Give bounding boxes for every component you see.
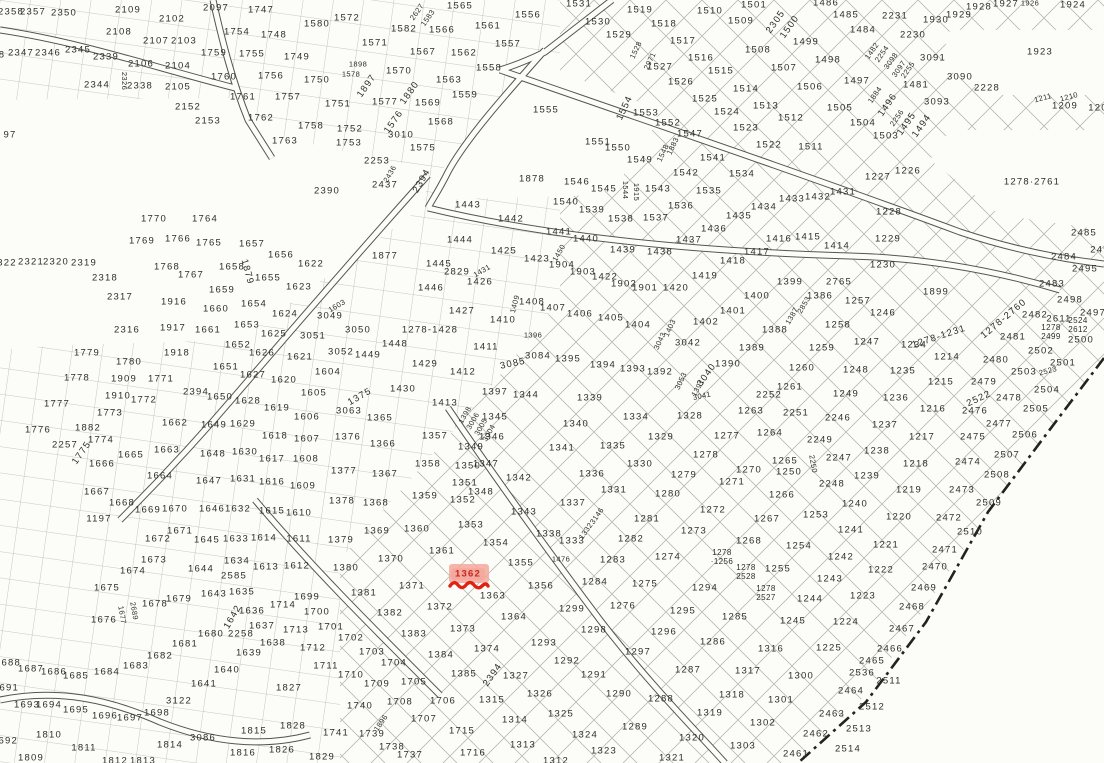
parcel-label: 3040 bbox=[696, 362, 719, 389]
parcel-label: 2477 bbox=[986, 419, 1012, 429]
parcel-label: 1249 bbox=[833, 389, 859, 399]
parcel-label: 2253 bbox=[364, 156, 390, 166]
parcel-label: 1330 bbox=[627, 459, 653, 469]
parcel-label: 1751 bbox=[325, 99, 351, 109]
parcel-label: 2482 bbox=[1022, 310, 1048, 320]
parcel-label: 1680 bbox=[198, 629, 224, 639]
parcel-label: 1915 bbox=[632, 183, 640, 201]
parcel-label: 1396 bbox=[524, 331, 542, 339]
parcel-label: 1294 bbox=[692, 583, 718, 593]
parcel-label: 1924 bbox=[1060, 0, 1086, 10]
parcel-label: 1613 bbox=[253, 562, 279, 572]
parcel-label: 1270 bbox=[736, 465, 762, 475]
parcel-label: 1916 bbox=[161, 297, 187, 307]
parcel-label: 3084 bbox=[525, 351, 551, 361]
parcel-label: 1575 bbox=[410, 143, 436, 153]
parcel-label: 1627 bbox=[240, 370, 266, 380]
parcel-label: 1626 bbox=[249, 348, 275, 358]
parcel-label: 2344 bbox=[84, 80, 110, 90]
parcel-label: 97 bbox=[4, 130, 17, 140]
parcel-label: 1441 bbox=[546, 227, 572, 237]
parcel-label: 2585 bbox=[221, 571, 247, 581]
parcel-label: 1413 bbox=[432, 398, 458, 408]
parcel-label: 1387 bbox=[784, 306, 800, 326]
parcel-label: 1439 bbox=[610, 245, 636, 255]
parcel-label: 1369 bbox=[364, 526, 390, 536]
parcel-label: 1567 bbox=[410, 47, 436, 57]
parcel-label: 1518 bbox=[651, 19, 677, 29]
parcel-label: 1709 bbox=[364, 679, 390, 689]
parcel-label: 3043 bbox=[653, 331, 668, 351]
parcel-label: 1565 bbox=[447, 1, 473, 11]
parcel-label: 1760 bbox=[211, 72, 237, 82]
parcel-label: 1506 bbox=[797, 82, 823, 92]
parcel-label: 1228 bbox=[876, 207, 902, 217]
parcel-label: 2469 bbox=[911, 583, 937, 593]
parcel-label: 1442 bbox=[498, 214, 524, 224]
parcel-label: 1617 bbox=[259, 454, 285, 464]
parcel-label: 1664 bbox=[147, 471, 173, 481]
parcel-label: 1360 bbox=[404, 524, 430, 534]
parcel-label: 1444 bbox=[447, 235, 473, 245]
parcel-label: 1284 bbox=[582, 577, 608, 587]
parcel-label: 2502 bbox=[1028, 346, 1054, 356]
parcel-label: 1657 bbox=[239, 239, 265, 249]
parcel-label: 1286 bbox=[700, 637, 726, 647]
parcel-label: 1291 bbox=[581, 670, 607, 680]
parcel-label: 1419 bbox=[692, 271, 718, 281]
parcel-label: 1400 bbox=[744, 291, 770, 301]
parcel-label: 1242 bbox=[828, 552, 854, 562]
parcel-label: 2536 bbox=[849, 668, 875, 678]
parcel-label: 1612 bbox=[284, 561, 310, 571]
parcel-label: 2346 bbox=[35, 48, 61, 58]
parcel-label: 2109 bbox=[115, 5, 141, 15]
parcel-label: 1323 bbox=[591, 746, 617, 756]
parcel-label: 1278 2499 bbox=[1041, 324, 1060, 342]
parcel-label: 1392 bbox=[647, 367, 673, 377]
parcel-label: 1316 bbox=[758, 644, 784, 654]
parcel-label: 2689 bbox=[129, 601, 140, 620]
parcel-label: 1321 bbox=[659, 753, 685, 763]
parcel-label: 1635 bbox=[229, 587, 255, 597]
parcel-label: 1677 bbox=[117, 605, 128, 624]
parcel-label: 1703 bbox=[359, 647, 385, 657]
parcel-label: 1268 bbox=[736, 536, 762, 546]
parcel-label: 1267 bbox=[754, 514, 780, 524]
parcel-label: 2484 bbox=[1051, 252, 1077, 262]
parcel-label: 1434 bbox=[751, 202, 777, 212]
parcel-label: 1485 bbox=[833, 10, 859, 20]
parcel-label: 1779 bbox=[74, 348, 100, 358]
parcel-label: 1287 bbox=[675, 665, 701, 675]
parcel-label: 1713 bbox=[283, 625, 309, 635]
parcel-label: 1278-1428 bbox=[402, 325, 458, 335]
parcel-label: 1714 bbox=[270, 600, 296, 610]
parcel-label: 1504 bbox=[850, 118, 876, 128]
parcel-label: 1762 bbox=[248, 113, 274, 123]
parcel-label: 1339 bbox=[577, 393, 603, 403]
parcel-label: 1606 bbox=[294, 412, 320, 422]
parcel-label: 1415 bbox=[795, 232, 821, 242]
parcel-label: 2467 bbox=[889, 624, 915, 634]
parcel-label: 1623 bbox=[286, 282, 312, 292]
parcel-label: 1259 bbox=[809, 343, 835, 353]
parcel-label: 1929 bbox=[946, 10, 972, 20]
parcel-label: 1644 bbox=[188, 564, 214, 574]
parcel-label: 1899 bbox=[923, 287, 949, 297]
parcel-label: 1699 bbox=[294, 592, 320, 602]
parcel-label: 1898 bbox=[349, 60, 367, 68]
parcel-label: 1300 bbox=[788, 671, 814, 681]
parcel-label: 2512 bbox=[859, 702, 885, 712]
parcel-label: 1359 bbox=[412, 491, 438, 501]
parcel-label: 1542 bbox=[673, 168, 699, 178]
parcel-label: 1654 bbox=[241, 299, 267, 309]
parcel-label: 1285 bbox=[722, 612, 748, 622]
parcel-label: 1245 bbox=[780, 616, 806, 626]
parcel-label: 1661 bbox=[195, 325, 221, 335]
parcel-label: 1315 bbox=[479, 695, 505, 705]
parcel-label: 1370 bbox=[378, 554, 404, 564]
parcel-label: 2480 bbox=[983, 355, 1009, 365]
parcel-label: 1716 bbox=[460, 748, 486, 758]
parcel-label: 1275 bbox=[632, 579, 658, 589]
parcel-label: 1577 bbox=[372, 97, 398, 107]
parcel-label: 1673 bbox=[141, 555, 167, 565]
parcel-label: 1616 bbox=[259, 477, 285, 487]
parcel-label: 2357 bbox=[20, 7, 46, 17]
parcel-label: 1747 bbox=[248, 5, 274, 15]
parcel-label: 1634 bbox=[224, 556, 250, 566]
parcel-label: 1297 bbox=[625, 647, 651, 657]
parcel-label: 2437 bbox=[372, 180, 398, 190]
parcel-label: 1666 bbox=[89, 459, 115, 469]
parcel-label: 1649 bbox=[201, 420, 227, 430]
parcel-label: 1272 bbox=[700, 505, 726, 515]
parcel-label: 1418 bbox=[720, 256, 746, 266]
parcel-label: 1344 bbox=[513, 390, 539, 400]
parcel-label: 1509 bbox=[728, 16, 754, 26]
parcel-label: 3093 bbox=[924, 97, 950, 107]
parcel-label: 2258 bbox=[228, 629, 254, 639]
parcel-label: 1650 bbox=[207, 392, 233, 402]
parcel-label: 2481 bbox=[1000, 332, 1026, 342]
parcel-label: 2523 bbox=[1038, 365, 1058, 377]
parcel-label: 1378 bbox=[329, 496, 355, 506]
parcel-label: 1288 bbox=[648, 694, 674, 704]
parcel-label: 1328 bbox=[677, 411, 703, 421]
parcel-label: 1815 bbox=[241, 726, 267, 736]
parcel-label: 1640 bbox=[214, 665, 240, 675]
parcel-label: 1710 bbox=[338, 670, 364, 680]
parcel-label: 1347 bbox=[473, 459, 499, 469]
parcel-label: 1741 bbox=[323, 728, 349, 738]
parcel-label: 1816 bbox=[230, 748, 256, 758]
parcel-label: 1353 bbox=[458, 520, 484, 530]
parcel-label-highlighted[interactable]: 1362 bbox=[451, 568, 485, 580]
parcel-label: 2503 bbox=[1011, 367, 1037, 377]
parcel-label: 1278 2528 bbox=[736, 564, 755, 582]
parcel-label: 1476 bbox=[552, 555, 570, 563]
parcel-label: 1758 bbox=[298, 121, 324, 131]
parcel-label: 1216 bbox=[920, 404, 946, 414]
parcel-label: 8 bbox=[0, 50, 5, 60]
parcel-label: 1607 bbox=[294, 434, 320, 444]
parcel-label: 1429 bbox=[412, 359, 438, 369]
parcel-label: 1754 bbox=[224, 27, 250, 37]
parcel-label: 2463 bbox=[819, 709, 845, 719]
parcel-label: 2257 bbox=[52, 440, 78, 450]
parcel-label: 120 bbox=[1088, 103, 1104, 113]
parcel-label: 1619 bbox=[264, 403, 290, 413]
parcel-label: 1685 bbox=[63, 671, 89, 681]
parcel-label: 1698 bbox=[144, 708, 170, 718]
parcel-label: 2350 bbox=[51, 8, 77, 18]
parcel-label: 1320 bbox=[679, 733, 705, 743]
parcel-label: 1700 bbox=[304, 607, 330, 617]
parcel-label: 1672 bbox=[145, 534, 171, 544]
parcel-label: 1692 bbox=[0, 736, 18, 746]
parcel-label: 1443 bbox=[455, 200, 481, 210]
parcel-label: 2476 bbox=[962, 406, 988, 416]
parcel-label: 1512 bbox=[778, 113, 804, 123]
parcel-label: 1530 bbox=[585, 17, 611, 27]
parcel-label: 1624 bbox=[272, 309, 298, 319]
parcel-label: 1411 bbox=[473, 342, 498, 352]
parcel-label: 1826 bbox=[269, 745, 295, 755]
parcel-label: 1399 bbox=[777, 277, 803, 287]
parcel-label: 1639 bbox=[236, 648, 262, 658]
parcel-label: 1653 bbox=[234, 320, 260, 330]
parcel-label: 1384 bbox=[428, 650, 454, 660]
parcel-label: 2230 bbox=[900, 30, 926, 40]
parcel-label: 1220 bbox=[886, 512, 912, 522]
parcel-label: 1632 bbox=[225, 504, 251, 514]
parcel-label: 2509 bbox=[976, 498, 1002, 508]
parcel-label: 1561 bbox=[475, 21, 501, 31]
parcel-label: 1549 bbox=[627, 155, 653, 165]
parcel-label: 1636 bbox=[239, 606, 265, 616]
parcel-label: 1543 bbox=[645, 184, 671, 194]
parcel-label: 2500 bbox=[1068, 335, 1094, 345]
parcel-label: 1707 bbox=[411, 714, 437, 724]
parcel-label: 1227 bbox=[865, 172, 891, 182]
parcel-label: 1343 bbox=[511, 507, 537, 517]
parcel-label: 2483 bbox=[1039, 279, 1065, 289]
parcel-label: 1312 bbox=[543, 756, 569, 763]
parcel-label: 1901 bbox=[632, 283, 658, 293]
parcel-label: 1609 bbox=[290, 481, 316, 491]
parcel-label: 3051 bbox=[300, 331, 326, 341]
parcel-label: 1665 bbox=[118, 450, 144, 460]
parcel-label: 1691 bbox=[0, 683, 19, 693]
parcel-label: 2390 bbox=[314, 186, 340, 196]
parcel-label: 1917 bbox=[160, 323, 186, 333]
parcel-label: 2524 2612 bbox=[1068, 317, 1087, 335]
parcel-label: 1663 bbox=[154, 445, 180, 455]
parcel-label: 1570 bbox=[386, 66, 412, 76]
parcel-label: 2470 bbox=[922, 562, 948, 572]
parcel-label: 1331 bbox=[601, 485, 627, 495]
parcel-label: 1676 bbox=[91, 615, 117, 625]
parcel-label: 1656 bbox=[268, 250, 294, 260]
parcel-label: 1704 bbox=[381, 658, 407, 668]
parcel-label: 1660 bbox=[203, 304, 229, 314]
parcel-label: 1372 bbox=[427, 602, 453, 612]
parcel-label: 1507 bbox=[771, 63, 797, 73]
parcel-label: 1669 bbox=[135, 505, 161, 515]
parcel-label: 1536 bbox=[668, 201, 694, 211]
parcel-label: 2485 bbox=[1071, 228, 1097, 238]
parcel-label: 1254 bbox=[786, 541, 812, 551]
parcel-label: 2249 bbox=[807, 435, 833, 445]
parcel-label: 1319 bbox=[697, 708, 723, 718]
parcel-label: 1757 bbox=[275, 92, 301, 102]
parcel-label: 3042 bbox=[675, 338, 701, 348]
parcel-label: 1715 bbox=[449, 726, 475, 736]
parcel-label: 1295 bbox=[670, 606, 696, 616]
parcel-label: 1630 bbox=[232, 447, 258, 457]
parcel-label: 1514 bbox=[733, 84, 759, 94]
parcel-label: 1546 bbox=[564, 177, 590, 187]
parcel-label: 1497 bbox=[844, 76, 870, 86]
parcel-label: 1771 bbox=[148, 374, 174, 384]
parcel-label: 1517 bbox=[670, 36, 696, 46]
parcel-label: 1508 bbox=[745, 45, 771, 55]
parcel-label: 1381 bbox=[351, 588, 377, 598]
parcel-label: 1209 bbox=[1052, 101, 1078, 111]
parcel-label: 1361 bbox=[429, 546, 455, 556]
parcel-label: 1197 bbox=[86, 514, 111, 524]
parcel-label: 1756 bbox=[258, 71, 284, 81]
parcel-label: 2321 bbox=[18, 257, 44, 267]
parcel-label: 2247 bbox=[826, 453, 852, 463]
parcel-label: 1571 bbox=[362, 38, 388, 48]
parcel-label: 2319 bbox=[71, 258, 97, 268]
parcel-label: 1329 bbox=[648, 432, 674, 442]
parcel-label: 1271 bbox=[719, 477, 745, 487]
parcel-label: 1621 bbox=[287, 352, 313, 362]
parcel-label: 1740 bbox=[347, 701, 373, 711]
parcel-label: 1240 bbox=[842, 499, 868, 509]
parcel-label: 1377 bbox=[331, 466, 357, 476]
parcel-label: 1406 bbox=[567, 309, 593, 319]
parcel-label: 1646 bbox=[199, 504, 225, 514]
parcel-label: 2462 bbox=[803, 729, 829, 739]
parcel-label: 2506 bbox=[1012, 430, 1038, 440]
parcel-label: 3086 bbox=[190, 733, 216, 743]
parcel-label: 1397 bbox=[482, 387, 508, 397]
parcel-label: 2339 bbox=[93, 52, 119, 62]
parcel-label: 1363 bbox=[480, 591, 506, 601]
parcel-label: 2511 bbox=[876, 676, 901, 686]
parcel-label: 1582 bbox=[391, 24, 417, 34]
parcel-label: 1324 bbox=[572, 730, 598, 740]
parcel-label: 1379 bbox=[328, 535, 354, 545]
parcel-label: 1402 bbox=[693, 317, 719, 327]
parcel-label: 2251 bbox=[783, 408, 809, 418]
parcel-label: 1333 bbox=[559, 536, 585, 546]
parcel-label: 1711 bbox=[313, 661, 338, 671]
parcel-label: 1684 bbox=[94, 667, 120, 677]
parcel-label: 2505 bbox=[1023, 404, 1049, 414]
parcel-label: 1882 bbox=[75, 423, 101, 433]
parcel-label: 1501 bbox=[741, 0, 767, 10]
parcel-label: 1498 bbox=[815, 55, 841, 65]
parcel-label: 1675 bbox=[94, 583, 120, 593]
parcel-label: 1265 bbox=[772, 456, 798, 466]
parcel-label: 2108 bbox=[106, 27, 132, 37]
parcel-label: 2106 bbox=[128, 59, 154, 69]
parcel-label: 1247 bbox=[854, 337, 880, 347]
parcel-label: 1769 bbox=[129, 236, 155, 246]
parcel-label: 3090 bbox=[947, 72, 973, 82]
parcel-label: 1244 bbox=[797, 594, 823, 604]
parcel-label: 1681 bbox=[172, 639, 198, 649]
parcel-label: 1367 bbox=[372, 469, 398, 479]
parcel-label: 1513 bbox=[753, 101, 779, 111]
parcel-label: 1341 bbox=[549, 443, 575, 453]
parcel-label: 1277 bbox=[714, 431, 740, 441]
parcel-label: 1547 bbox=[677, 129, 703, 139]
parcel-label: 1629 bbox=[230, 419, 256, 429]
parcel-label: 1435 bbox=[726, 211, 752, 221]
parcel-label: 1318 bbox=[719, 690, 745, 700]
parcel-label: 2514 bbox=[835, 744, 861, 754]
parcel-label: 1556 bbox=[515, 10, 541, 20]
parcel-label: 1910 bbox=[105, 391, 131, 401]
parcel-label: 1559 bbox=[452, 90, 478, 100]
parcel-label: 1325 bbox=[548, 709, 574, 719]
parcel-label: 2231 bbox=[882, 11, 908, 21]
parcel-label: 1215 bbox=[928, 377, 954, 387]
parcel-label: 1755 bbox=[239, 49, 265, 59]
cadastral-map[interactable]: 2358235723502109210220971747158015722108… bbox=[0, 0, 1104, 763]
parcel-label: 3053 bbox=[674, 371, 689, 391]
parcel-label: 1243 bbox=[817, 574, 843, 584]
parcel-label: 1394 bbox=[590, 360, 616, 370]
parcel-label: 2464 bbox=[838, 686, 864, 696]
parcel-label: 1376 bbox=[335, 432, 361, 442]
parcel-label: 1909 bbox=[111, 374, 137, 384]
parcel-label: 1238 bbox=[864, 446, 890, 456]
parcel-label: 1712 bbox=[300, 643, 326, 653]
parcel-label: 1426 bbox=[467, 277, 493, 287]
parcel-label: 1538 bbox=[608, 214, 634, 224]
parcel-label: 1525 bbox=[692, 94, 718, 104]
parcel-label: 1255 bbox=[765, 564, 791, 574]
parcel-label: 1708 bbox=[387, 697, 413, 707]
parcel-label: 1814 bbox=[157, 740, 183, 750]
parcel-label: 1365 bbox=[367, 413, 393, 423]
parcel-label: 1229 bbox=[875, 234, 901, 244]
parcel-label: 1763 bbox=[272, 136, 298, 146]
parcel-label: 1430 bbox=[390, 384, 416, 394]
parcel-label: 1340 bbox=[563, 419, 589, 429]
parcel-label: 1923 bbox=[1027, 47, 1053, 57]
parcel-label: 1668 bbox=[109, 498, 135, 508]
parcel-label: 1541 bbox=[700, 153, 726, 163]
parcel-label: 3085 bbox=[499, 357, 526, 372]
parcel-label: 1337 bbox=[560, 498, 586, 508]
parcel-label: 1610 bbox=[286, 508, 312, 518]
parcel-label: 1608 bbox=[293, 454, 319, 464]
parcel-label: 1523 bbox=[733, 123, 759, 133]
parcel-label: 3052 bbox=[328, 347, 354, 357]
parcel-label: 2345 bbox=[65, 45, 91, 55]
parcel-label: 1364 bbox=[501, 612, 527, 622]
